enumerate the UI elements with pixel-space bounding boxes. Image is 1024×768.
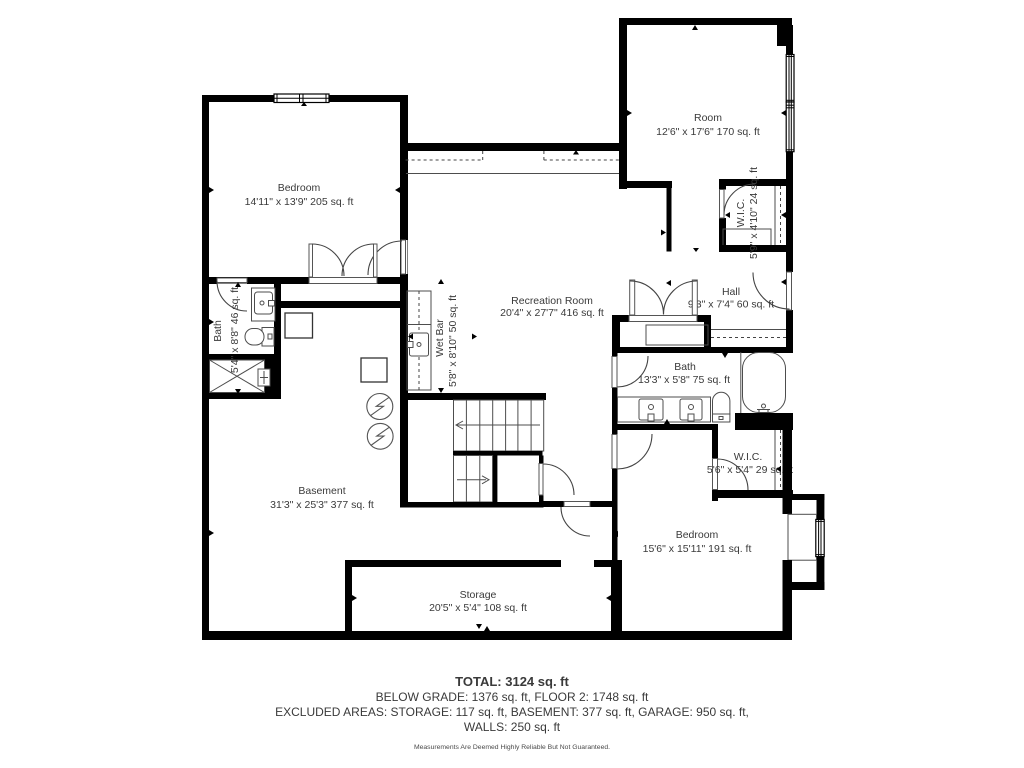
svg-text:12'6" x 17'6" 170 sq. ft: 12'6" x 17'6" 170 sq. ft [656, 126, 760, 138]
svg-text:Recreation Room: Recreation Room [511, 295, 593, 307]
svg-text:5'9" x 4'10" 24 sq. ft: 5'9" x 4'10" 24 sq. ft [748, 167, 760, 259]
svg-text:14'11" x 13'9" 205 sq. ft: 14'11" x 13'9" 205 sq. ft [245, 196, 354, 208]
svg-text:Storage: Storage [460, 589, 497, 601]
svg-text:13'3" x 5'8" 75 sq. ft: 13'3" x 5'8" 75 sq. ft [638, 374, 730, 386]
svg-text:EXCLUDED AREAS: STORAGE: 117 s: EXCLUDED AREAS: STORAGE: 117 sq. ft, BAS… [275, 705, 749, 719]
svg-text:Basement: Basement [298, 485, 345, 497]
svg-text:5'4" x 8'8" 46 sq. ft: 5'4" x 8'8" 46 sq. ft [229, 287, 241, 373]
svg-text:9'3" x 7'4" 60 sq. ft: 9'3" x 7'4" 60 sq. ft [688, 299, 774, 311]
svg-text:20'4" x 27'7" 416 sq. ft: 20'4" x 27'7" 416 sq. ft [500, 307, 604, 319]
svg-text:5'8" x 8'10" 50 sq. ft: 5'8" x 8'10" 50 sq. ft [447, 295, 459, 387]
svg-text:W.I.C.: W.I.C. [734, 451, 763, 463]
svg-text:BELOW GRADE: 1376 sq. ft, FLOO: BELOW GRADE: 1376 sq. ft, FLOOR 2: 1748 … [376, 690, 649, 704]
svg-text:31'3" x 25'3" 377 sq. ft: 31'3" x 25'3" 377 sq. ft [270, 499, 374, 511]
svg-text:Room: Room [694, 112, 722, 124]
svg-text:Bedroom: Bedroom [676, 529, 719, 541]
svg-text:20'5" x 5'4" 108 sq. ft: 20'5" x 5'4" 108 sq. ft [429, 602, 527, 614]
svg-text:Bath: Bath [674, 361, 696, 373]
svg-text:15'6" x 15'11" 191 sq. ft: 15'6" x 15'11" 191 sq. ft [643, 543, 752, 555]
svg-text:W.I.C.: W.I.C. [735, 199, 747, 228]
svg-text:WALLS: 250 sq. ft: WALLS: 250 sq. ft [464, 720, 561, 734]
svg-text:Hall: Hall [722, 286, 740, 298]
svg-text:Wet Bar: Wet Bar [434, 319, 446, 357]
svg-text:Measurements Are Deemed Highly: Measurements Are Deemed Highly Reliable … [414, 744, 610, 751]
svg-text:TOTAL: 3124 sq. ft: TOTAL: 3124 sq. ft [455, 674, 569, 689]
svg-text:Bedroom: Bedroom [278, 182, 321, 194]
svg-text:Bath: Bath [212, 320, 224, 342]
